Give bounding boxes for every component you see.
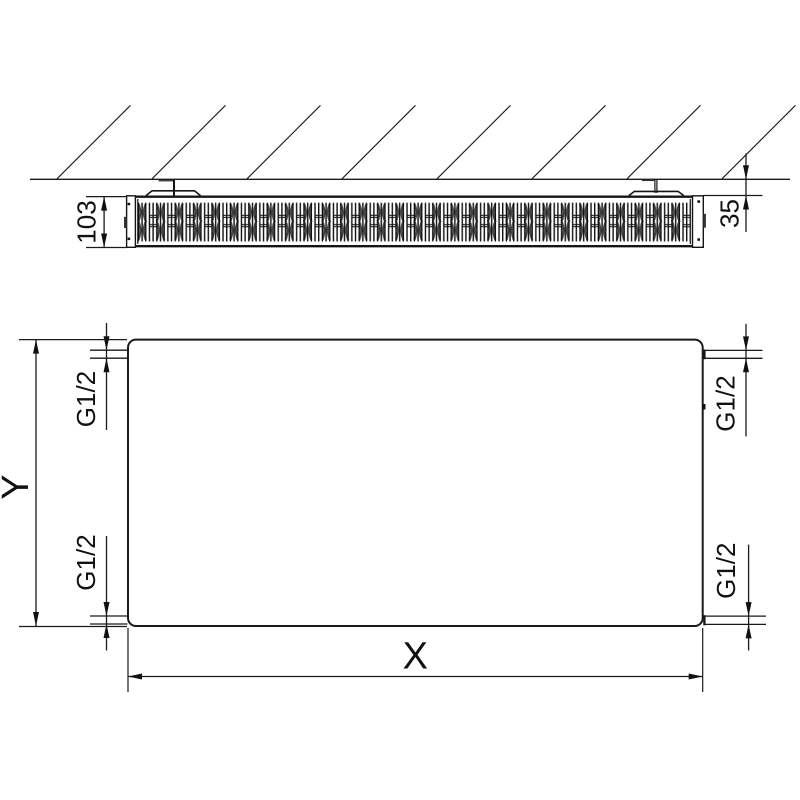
svg-text:103: 103 — [72, 200, 102, 243]
svg-text:G1/2: G1/2 — [711, 375, 741, 431]
svg-text:G1/2: G1/2 — [71, 534, 101, 590]
svg-text:Y: Y — [0, 474, 37, 499]
svg-text:X: X — [403, 636, 428, 678]
svg-text:G1/2: G1/2 — [711, 543, 741, 599]
svg-text:G1/2: G1/2 — [71, 371, 101, 427]
svg-text:35: 35 — [715, 199, 745, 228]
